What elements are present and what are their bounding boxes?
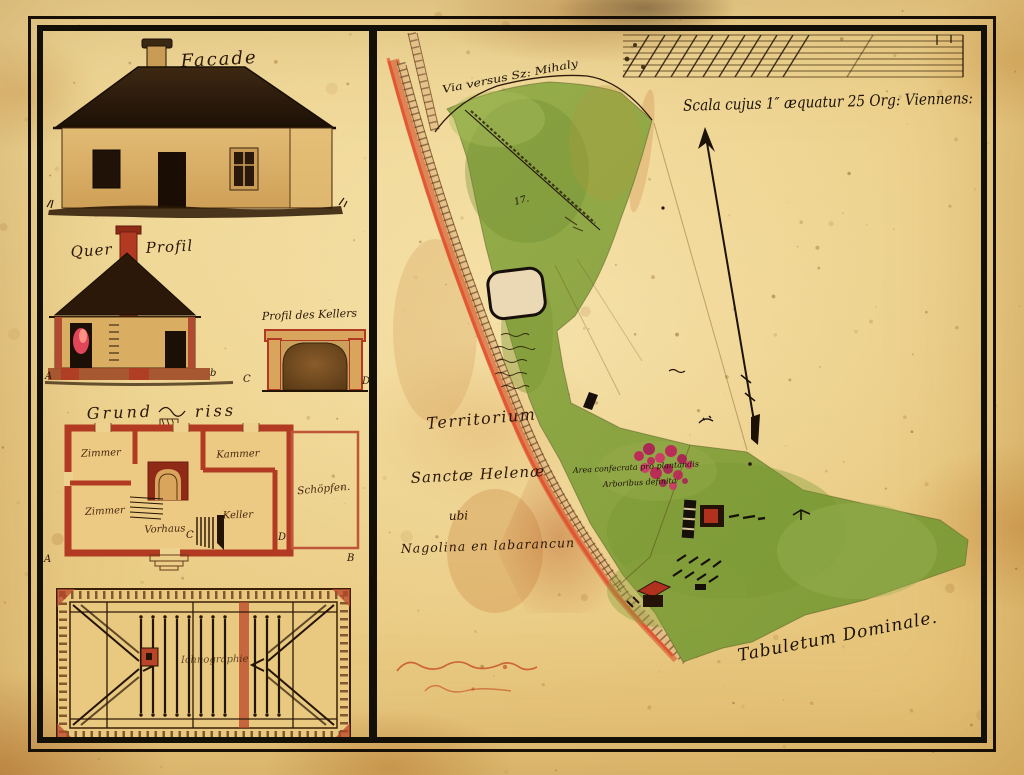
marker-plan-b: B bbox=[346, 553, 354, 564]
roof-plan-red-beam bbox=[239, 602, 249, 728]
room-label-zimmer-tl: Zimmer bbox=[80, 447, 122, 459]
ground-plan-drawing: Grund riss bbox=[43, 401, 358, 570]
section-roof bbox=[55, 253, 195, 315]
hearth-fire-glow bbox=[79, 329, 87, 343]
cellar-vault-arch bbox=[283, 343, 347, 390]
cadastral-map-panel: Scala cujus 1″ æquatur 25 Org: Viennens: bbox=[377, 31, 981, 737]
footing-mid bbox=[129, 368, 149, 380]
hipped-roof bbox=[55, 67, 334, 128]
territorium-line2: Sanctæ Helenæ bbox=[410, 462, 545, 487]
mark-squiggle bbox=[699, 416, 713, 423]
chimney bbox=[147, 46, 166, 69]
plan-title-right: riss bbox=[194, 401, 236, 421]
north-arrow bbox=[698, 127, 760, 445]
manuscript-page: Facade Quer Profil bbox=[0, 0, 1024, 775]
arrow-head bbox=[698, 127, 715, 152]
architectural-drawings-panel: Facade Quer Profil bbox=[43, 31, 369, 737]
building-symbol-wedge bbox=[583, 392, 598, 410]
room-label-vorhaus: Vorhaus bbox=[144, 523, 185, 535]
plan-title-left: Grund bbox=[86, 402, 153, 423]
cellar-pillar-right bbox=[349, 339, 362, 390]
footing-left bbox=[61, 368, 79, 380]
front-door bbox=[158, 152, 186, 208]
section-door-opening bbox=[165, 331, 186, 368]
marker-cellar-c: C bbox=[243, 374, 251, 385]
marker-plan-d: D bbox=[277, 532, 286, 543]
building-plot bbox=[486, 267, 546, 320]
cellar-profile-drawing: Profil des Kellers C D bbox=[243, 307, 369, 391]
roof-plan-label: Ichnographie bbox=[180, 654, 249, 666]
roof-plan-red-square-core bbox=[146, 653, 152, 660]
panel-divider bbox=[369, 31, 377, 737]
room-label-keller: Keller bbox=[222, 509, 255, 521]
marker-plan-c: C bbox=[186, 530, 194, 541]
side-wing-wall bbox=[290, 129, 331, 207]
roof-framing-plan: Ichnographie bbox=[57, 589, 350, 737]
section-post-right bbox=[188, 317, 195, 368]
surveyor-signature bbox=[397, 662, 537, 692]
left-window bbox=[93, 150, 120, 188]
title-flourish bbox=[159, 408, 185, 417]
marker-profile-b: b bbox=[210, 368, 216, 379]
territorium-line3: ubi bbox=[449, 508, 469, 523]
room-label-schoepfen: Schöpfen. bbox=[297, 481, 351, 498]
facade-drawing: Facade bbox=[47, 39, 347, 218]
cross-section-drawing: Quer Profil A b bbox=[44, 226, 233, 386]
marker-cellar-d: D bbox=[361, 376, 369, 387]
scale-bar bbox=[623, 35, 963, 77]
profile-title-right: Profil bbox=[144, 237, 193, 258]
cellar-pillar-left bbox=[268, 339, 281, 390]
entry-porch-steps bbox=[150, 555, 188, 570]
room-label-kammer: Kammer bbox=[215, 448, 261, 461]
marker-profile-a: A bbox=[44, 371, 52, 382]
marker-plan-a: A bbox=[43, 554, 51, 565]
section-post-left bbox=[55, 317, 62, 368]
scale-caption: Scala cujus 1″ æquatur 25 Org: Viennens: bbox=[683, 89, 973, 115]
room-label-zimmer-bl: Zimmer bbox=[84, 505, 127, 518]
cellar-title: Profil des Kellers bbox=[261, 307, 358, 323]
section-ground-smear bbox=[45, 381, 233, 386]
profile-title-left: Quer bbox=[70, 240, 113, 261]
red-building-symbol bbox=[700, 505, 724, 527]
arrow-tail-flag bbox=[751, 414, 760, 445]
